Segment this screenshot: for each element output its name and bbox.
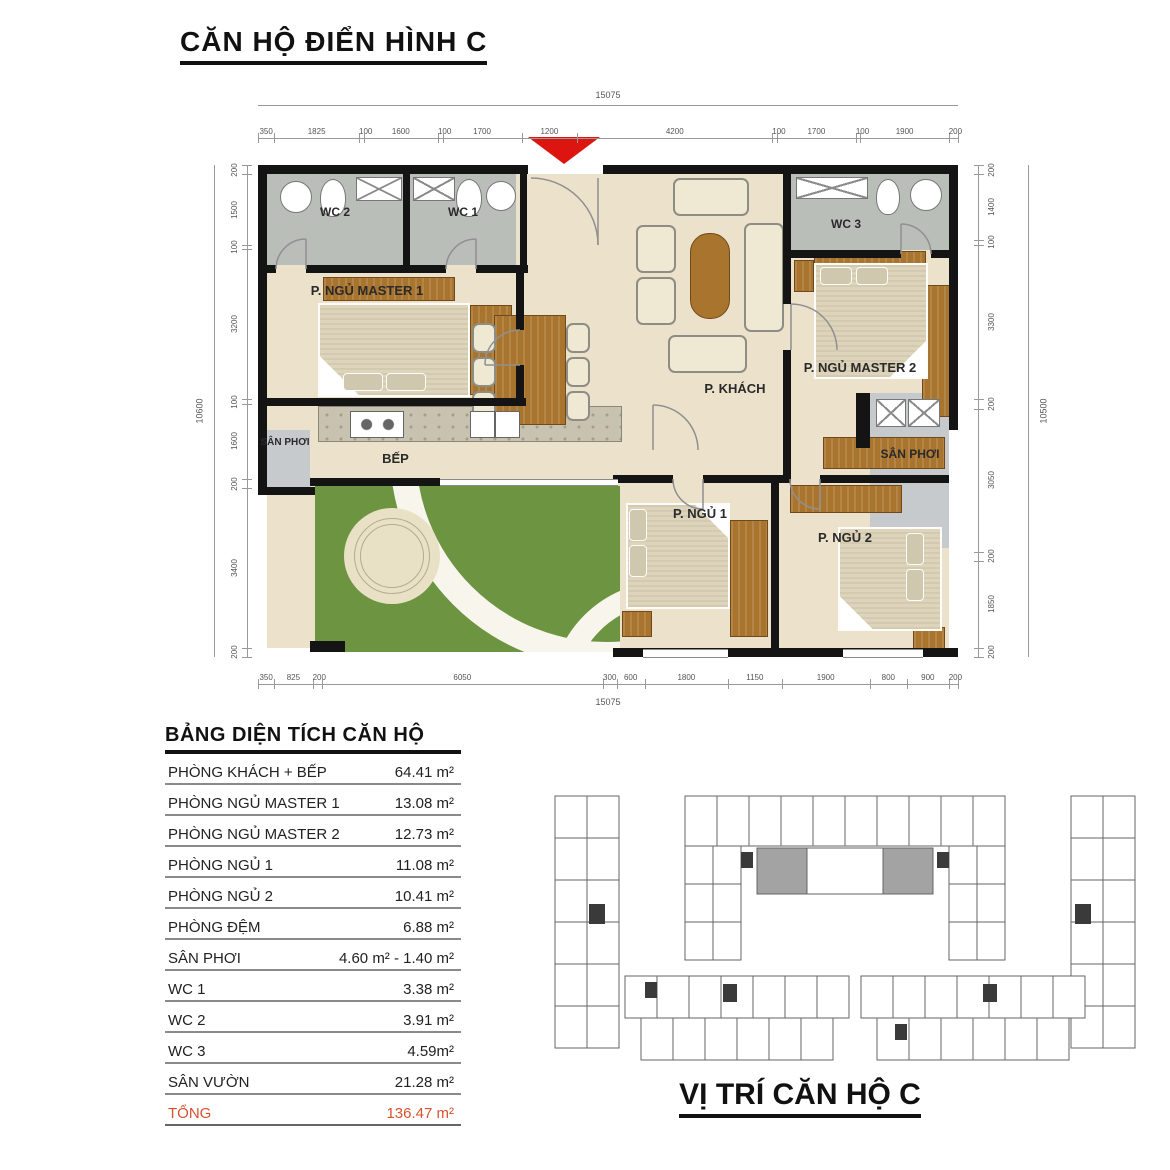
site-unit-cell — [1103, 880, 1135, 922]
dim-segment: 1900 — [782, 663, 870, 685]
site-unit-cell — [781, 796, 813, 846]
site-unit-cell — [555, 838, 587, 880]
site-unit-cell — [1103, 922, 1135, 964]
site-unit-cell — [749, 796, 781, 846]
dim-segment: 1600 — [222, 404, 248, 479]
site-core-block — [645, 982, 657, 998]
site-unit-cell — [1103, 796, 1135, 838]
room-label-wc1: WC 1 — [410, 205, 516, 220]
site-core-block — [983, 984, 997, 1002]
dim-segment: 1700 — [443, 117, 522, 139]
room-label-bep: BẾP — [338, 451, 453, 467]
dim-segment: 800 — [870, 663, 907, 685]
site-unit-cell — [685, 884, 713, 922]
site-title: VỊ TRÍ CĂN HỘ C — [620, 1078, 980, 1118]
area-table-rows: PHÒNG KHÁCH + BẾP64.41 m²PHÒNG NGỦ MASTE… — [165, 754, 461, 1126]
site-unit-cell — [1071, 796, 1103, 838]
area-row: PHÒNG ĐỆM6.88 m² — [165, 909, 461, 940]
dim-chain-right: 2001400100330020030502001850200 — [978, 165, 1004, 657]
site-unit-cell — [769, 1018, 801, 1060]
site-unit-cell — [977, 922, 1005, 960]
site-unit-cell — [813, 796, 845, 846]
room-label-wc2: WC 2 — [267, 205, 403, 220]
area-row: PHÒNG NGỦ MASTER 113.08 m² — [165, 785, 461, 816]
dim-segment: 825 — [274, 663, 312, 685]
highlighted-unit-c-left — [757, 848, 807, 894]
site-unit-cell — [555, 922, 587, 964]
site-unit-cell — [973, 1018, 1005, 1060]
dim-total-top: 15075 — [258, 90, 958, 100]
dim-segment: 200 — [978, 648, 1004, 657]
dim-segment: 300 — [603, 663, 617, 685]
site-unit-cell — [555, 964, 587, 1006]
dim-total-bottom: 15075 — [258, 697, 958, 707]
dim-segment: 200 — [949, 663, 958, 685]
site-unit-cell — [1071, 922, 1103, 964]
dim-segment: 350 — [258, 663, 274, 685]
site-unit-cell — [1005, 1018, 1037, 1060]
dim-segment: 1600 — [364, 117, 438, 139]
room-label-san-phoi-right: SÂN PHƠI — [874, 447, 946, 462]
site-unit-cell — [909, 796, 941, 846]
dim-segment: 3050 — [978, 409, 1004, 552]
highlighted-unit-c-right — [883, 848, 933, 894]
site-unit-cell — [1021, 976, 1053, 1018]
dim-chain-bottom: 3508252006050300600180011501900800900200 — [258, 663, 958, 685]
dim-segment: 200 — [313, 663, 322, 685]
site-core-block — [895, 1024, 907, 1040]
site-unit-cell — [587, 964, 619, 1006]
area-row: PHÒNG NGỦ 111.08 m² — [165, 847, 461, 878]
site-unit-cell — [587, 1006, 619, 1048]
area-row: WC 13.38 m² — [165, 971, 461, 1002]
site-unit-cell — [641, 1018, 673, 1060]
doors-windows-overlay — [258, 165, 958, 657]
dim-total-left: 10600 — [192, 165, 208, 657]
area-table-title: BẢNG DIỆN TÍCH CĂN HỘ — [165, 724, 461, 754]
dim-segment: 1150 — [728, 663, 781, 685]
page: CĂN HỘ ĐIỂN HÌNH C WC 2 WC 1 — [0, 0, 1170, 1170]
room-label-master1: P. NGỦ MASTER 1 — [267, 283, 467, 299]
dim-segment: 4200 — [577, 117, 772, 139]
site-core-block — [589, 904, 605, 924]
entrance-arrow-icon — [528, 137, 600, 164]
site-unit-cell — [555, 880, 587, 922]
site-unit-cell — [713, 922, 741, 960]
room-label-ngu1: P. NGỦ 1 — [630, 506, 770, 522]
site-unit-cell — [1037, 1018, 1069, 1060]
dim-segment: 1825 — [274, 117, 359, 139]
area-row: PHÒNG KHÁCH + BẾP64.41 m² — [165, 754, 461, 785]
site-unit-cell — [977, 846, 1005, 884]
site-unit-cell — [785, 976, 817, 1018]
site-unit-cell — [949, 846, 977, 884]
site-unit-cell — [909, 1018, 941, 1060]
dim-segment: 1850 — [978, 561, 1004, 648]
site-unit-cell — [737, 1018, 769, 1060]
dim-segment: 200 — [222, 479, 248, 488]
site-unit-cell — [705, 1018, 737, 1060]
site-unit-cell — [673, 1018, 705, 1060]
site-unit-cell — [657, 976, 689, 1018]
room-label-wc3: WC 3 — [791, 217, 901, 232]
dim-segment: 350 — [258, 117, 274, 139]
site-core-block — [741, 852, 753, 868]
dim-segment: 200 — [978, 552, 1004, 561]
site-unit-cell — [1071, 838, 1103, 880]
site-unit-cell — [555, 796, 587, 838]
site-unit-cell — [977, 884, 1005, 922]
dim-segment: 3400 — [222, 488, 248, 647]
site-unit-cell — [877, 796, 909, 846]
site-unit-cell — [685, 796, 717, 846]
site-core-block — [723, 984, 737, 1002]
dim-chain-left: 2001500100320010016002003400200 — [222, 165, 248, 657]
area-row-total: TỔNG136.47 m² — [165, 1095, 461, 1126]
area-row: WC 34.59m² — [165, 1033, 461, 1064]
dim-segment: 1200 — [522, 117, 578, 139]
site-unit-cell — [941, 796, 973, 846]
dim-segment: 1900 — [860, 117, 948, 139]
dim-segment: 200 — [222, 648, 248, 657]
dim-segment: 900 — [907, 663, 949, 685]
site-unit-cell — [845, 796, 877, 846]
dim-segment: 600 — [617, 663, 645, 685]
site-unit-cell — [685, 922, 713, 960]
dim-chain-top: 3501825100160010017001200420010017001001… — [258, 117, 958, 139]
dim-segment: 200 — [978, 399, 1004, 408]
site-unit-cell — [1103, 1006, 1135, 1048]
site-unit-cell — [973, 796, 1005, 846]
dim-total-right: 10500 — [1036, 165, 1052, 657]
site-unit-cell — [685, 846, 713, 884]
room-label-san-phoi-left: SÂN PHƠI — [260, 437, 310, 450]
site-unit-cell — [801, 1018, 833, 1060]
dim-segment: 3300 — [978, 245, 1004, 400]
dim-segment: 1800 — [645, 663, 729, 685]
dim-segment: 200 — [978, 165, 1004, 174]
site-unit-cell — [753, 976, 785, 1018]
area-row: PHÒNG NGỦ 210.41 m² — [165, 878, 461, 909]
room-label-master2: P. NGỦ MASTER 2 — [765, 360, 955, 376]
site-unit-cell — [1053, 976, 1085, 1018]
site-core-block — [937, 852, 949, 868]
site-unit-cell — [713, 846, 741, 884]
site-unit-cell — [587, 796, 619, 838]
site-unit-cell — [717, 796, 749, 846]
site-unit-cell — [555, 1006, 587, 1048]
site-unit-cell — [1103, 964, 1135, 1006]
site-unit-cell — [861, 976, 893, 1018]
page-title: CĂN HỘ ĐIỂN HÌNH C — [180, 26, 487, 65]
site-unit-cell — [713, 884, 741, 922]
area-row: SÂN PHƠI4.60 m² - 1.40 m² — [165, 940, 461, 971]
dim-segment: 6050 — [322, 663, 603, 685]
site-unit-cell — [893, 976, 925, 1018]
area-row: SÂN VƯỜN21.28 m² — [165, 1064, 461, 1095]
site-unit-cell — [817, 976, 849, 1018]
area-table: BẢNG DIỆN TÍCH CĂN HỘ PHÒNG KHÁCH + BẾP6… — [165, 724, 461, 1126]
site-unit-cell — [941, 1018, 973, 1060]
site-unit-cell — [689, 976, 721, 1018]
room-label-ngu2: P. NGỦ 2 — [775, 530, 915, 546]
dim-segment: 3200 — [222, 249, 248, 399]
site-unit-cell — [1103, 838, 1135, 880]
floor-plan: WC 2 WC 1 WC 3 P. NGỦ MASTER 1 P. KHÁCH … — [258, 165, 958, 657]
site-core-block — [1075, 904, 1091, 924]
site-unit-cell — [949, 922, 977, 960]
area-row: WC 23.91 m² — [165, 1002, 461, 1033]
dim-segment: 200 — [222, 165, 248, 174]
dim-segment: 200 — [949, 117, 958, 139]
dim-segment: 1700 — [777, 117, 856, 139]
site-unit-cell — [925, 976, 957, 1018]
room-label-khach: P. KHÁCH — [640, 381, 830, 397]
site-unit-cell — [587, 838, 619, 880]
site-unit-cell — [949, 884, 977, 922]
site-unit-cell — [587, 922, 619, 964]
area-row: PHÒNG NGỦ MASTER 212.73 m² — [165, 816, 461, 847]
site-plan — [545, 786, 1145, 1086]
